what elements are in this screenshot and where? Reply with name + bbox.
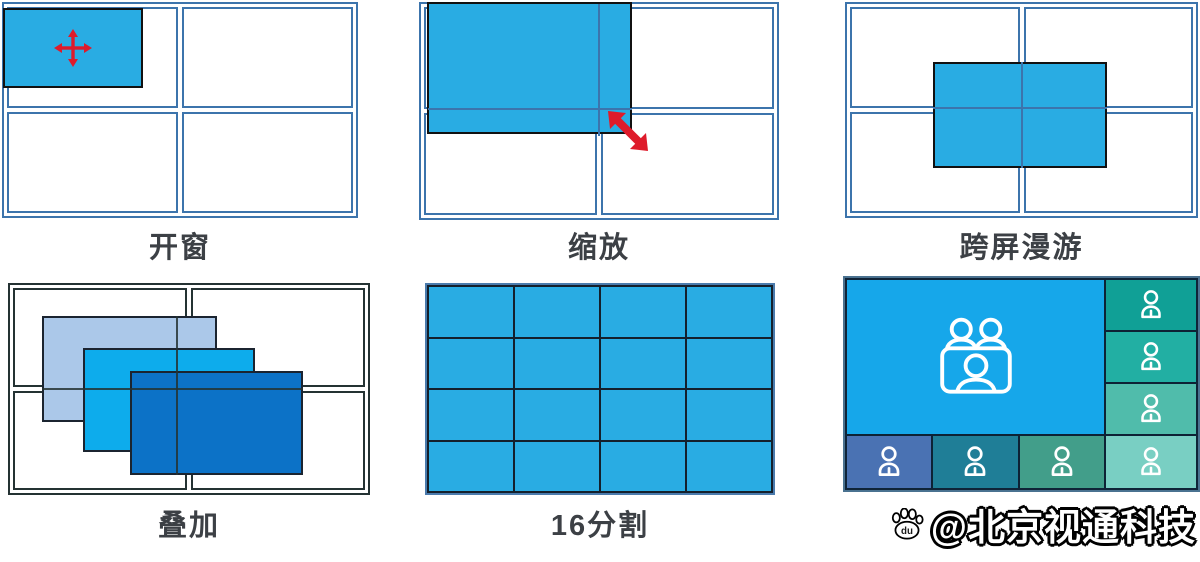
grid-line-overlay (176, 316, 178, 475)
person-icon (957, 444, 993, 480)
grid-line-overlay (42, 388, 303, 390)
split-cell (687, 390, 771, 440)
person-icon (1134, 340, 1168, 374)
conference-grid (845, 278, 1198, 490)
split-cell (429, 339, 513, 389)
panel-label: 叠加 (8, 502, 370, 544)
participant-cell (847, 436, 931, 488)
split-cell (429, 442, 513, 492)
screen-cell (7, 112, 178, 213)
split-cell (515, 442, 599, 492)
grid-line-overlay (428, 108, 632, 110)
participant-cell (1020, 436, 1104, 488)
screen-cell (182, 7, 353, 108)
person-icon (1134, 392, 1168, 426)
panel-label: 缩放 (419, 224, 779, 266)
split-cell (601, 390, 685, 440)
panel-label: 开窗 (2, 224, 358, 266)
panel-zoom-scale (419, 2, 779, 220)
grid-line-overlay (933, 107, 1107, 109)
stacked-window-front (130, 371, 303, 475)
person-icon (1044, 444, 1080, 480)
video-wall-feature-diagram: 开窗 缩放 跨屏漫游 (0, 0, 1200, 562)
paw-letters: du (901, 526, 913, 537)
panel-label: 跨屏漫游 (845, 224, 1198, 266)
split-cell (429, 390, 513, 440)
split-cell (601, 442, 685, 492)
watermark-text: @北京视通科技 (931, 497, 1196, 551)
grid-line-overlay (1021, 62, 1023, 168)
participant-cell (933, 436, 1017, 488)
main-video-cell (847, 280, 1104, 434)
baidu-paw-icon: du (889, 508, 925, 540)
meeting-group-icon (924, 315, 1028, 399)
video-window (933, 62, 1107, 168)
screen-cell (182, 112, 353, 213)
grid-line-overlay (598, 4, 600, 136)
participant-cell (1106, 436, 1196, 488)
resize-arrow-icon (603, 106, 653, 156)
split-cell (601, 287, 685, 337)
person-icon (871, 444, 907, 480)
split-cell (687, 442, 771, 492)
panel-cross-screen-roam (845, 2, 1198, 218)
watermark: du @北京视通科技 (889, 498, 1196, 550)
move-arrow-icon (53, 28, 93, 68)
split-cell (429, 287, 513, 337)
video-window (427, 2, 632, 134)
split-grid (425, 283, 775, 495)
person-icon (1134, 445, 1168, 479)
split-cell (515, 390, 599, 440)
split-cell (601, 339, 685, 389)
panel-video-conference (845, 278, 1198, 490)
panel-label: 16分割 (425, 502, 775, 544)
person-icon (1134, 288, 1168, 322)
video-window (3, 8, 143, 88)
participant-cell (1106, 384, 1196, 434)
split-cell (515, 339, 599, 389)
split-cell (515, 287, 599, 337)
split-cell (687, 339, 771, 389)
participant-cell (1106, 280, 1196, 330)
panel-open-window (2, 2, 358, 218)
participant-cell (1106, 332, 1196, 382)
split-cell (687, 287, 771, 337)
panel-overlay-stack (8, 283, 370, 495)
panel-split-16 (425, 283, 775, 495)
